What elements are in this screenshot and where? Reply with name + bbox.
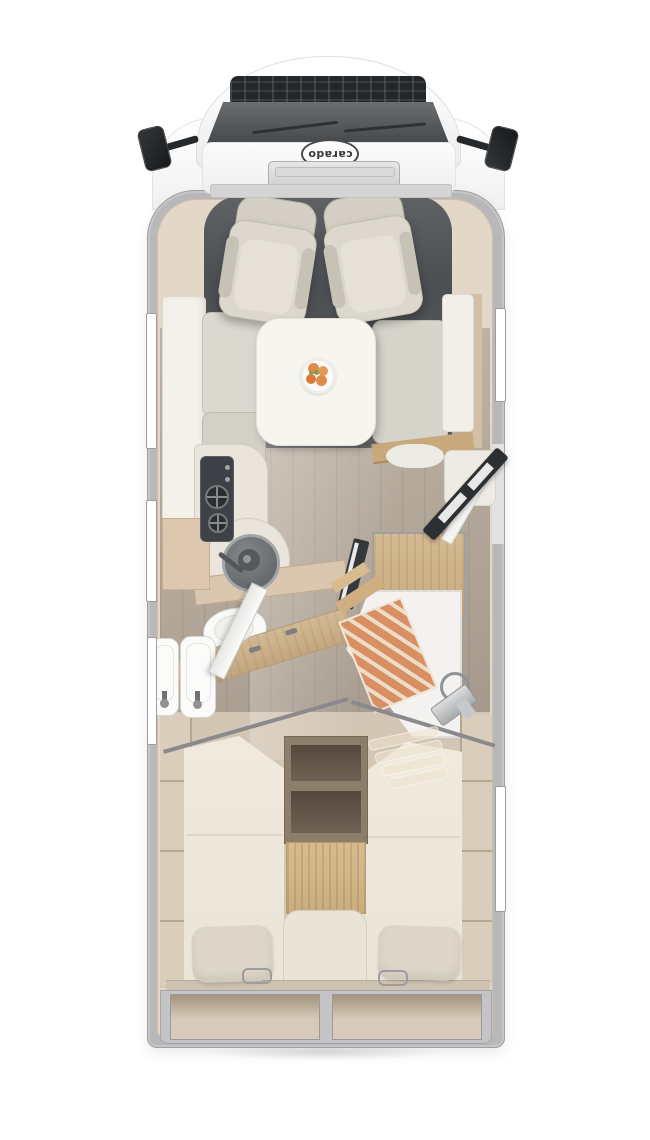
window-left-kitchen: [146, 500, 157, 602]
basin-tap-knob: [160, 699, 169, 708]
aisle-step-cushion: [283, 910, 367, 986]
platform-handle: [242, 968, 272, 984]
wing-mirror-right: [483, 124, 520, 172]
cooktop-knob: [225, 465, 230, 470]
aisle-shelf-unit: [284, 736, 368, 844]
window-left-lounge: [146, 313, 157, 449]
aisle-step-wood: [286, 842, 366, 914]
cab-sill-trim: [210, 184, 452, 198]
rear-storage-compartment-left: [170, 994, 320, 1040]
mattress-seam: [364, 836, 460, 838]
cooktop-knob: [225, 477, 230, 482]
shelf-divider: [462, 920, 492, 922]
window-right-bedroom: [495, 786, 506, 912]
window-right-lounge: [495, 308, 506, 402]
driver-seat-cushion: [232, 238, 300, 316]
fruit: [306, 374, 316, 384]
brand-logo-text: carado: [308, 148, 353, 161]
burner: [208, 513, 228, 533]
shelf-opening: [291, 745, 361, 781]
shelf-opening: [291, 791, 361, 833]
burner: [205, 485, 229, 509]
driver-seat: [215, 192, 323, 327]
fruit-leaf: [314, 370, 319, 375]
sink-faucet-base: [243, 555, 251, 563]
bench-right-end-panel: [386, 444, 444, 468]
rear-storage-compartment-right: [332, 994, 482, 1040]
vanity-tap: [285, 628, 298, 636]
dinette-backrest-panel-right: [442, 294, 474, 432]
skylight-inner: [275, 167, 395, 177]
wing-mirror-left: [136, 124, 173, 172]
fruit-plate: [300, 358, 336, 394]
cooktop: [200, 456, 234, 542]
shelf-divider: [462, 850, 492, 852]
mattress-seam: [186, 834, 282, 836]
platform-handle: [378, 970, 408, 986]
window-left-bathroom: [147, 637, 157, 745]
washbasin-right: [180, 636, 216, 718]
fruit: [316, 375, 327, 386]
basin-tap-knob: [193, 700, 202, 709]
wardrobe-strip-right: [460, 714, 492, 986]
dinette-bench-right-cushion: [372, 320, 448, 444]
fruit-leaf: [309, 371, 313, 375]
shelf-divider: [462, 780, 492, 782]
motorhome-floorplan: carado: [0, 0, 650, 1140]
passenger-seat-cushion: [338, 233, 408, 314]
vanity-tap: [248, 645, 261, 653]
